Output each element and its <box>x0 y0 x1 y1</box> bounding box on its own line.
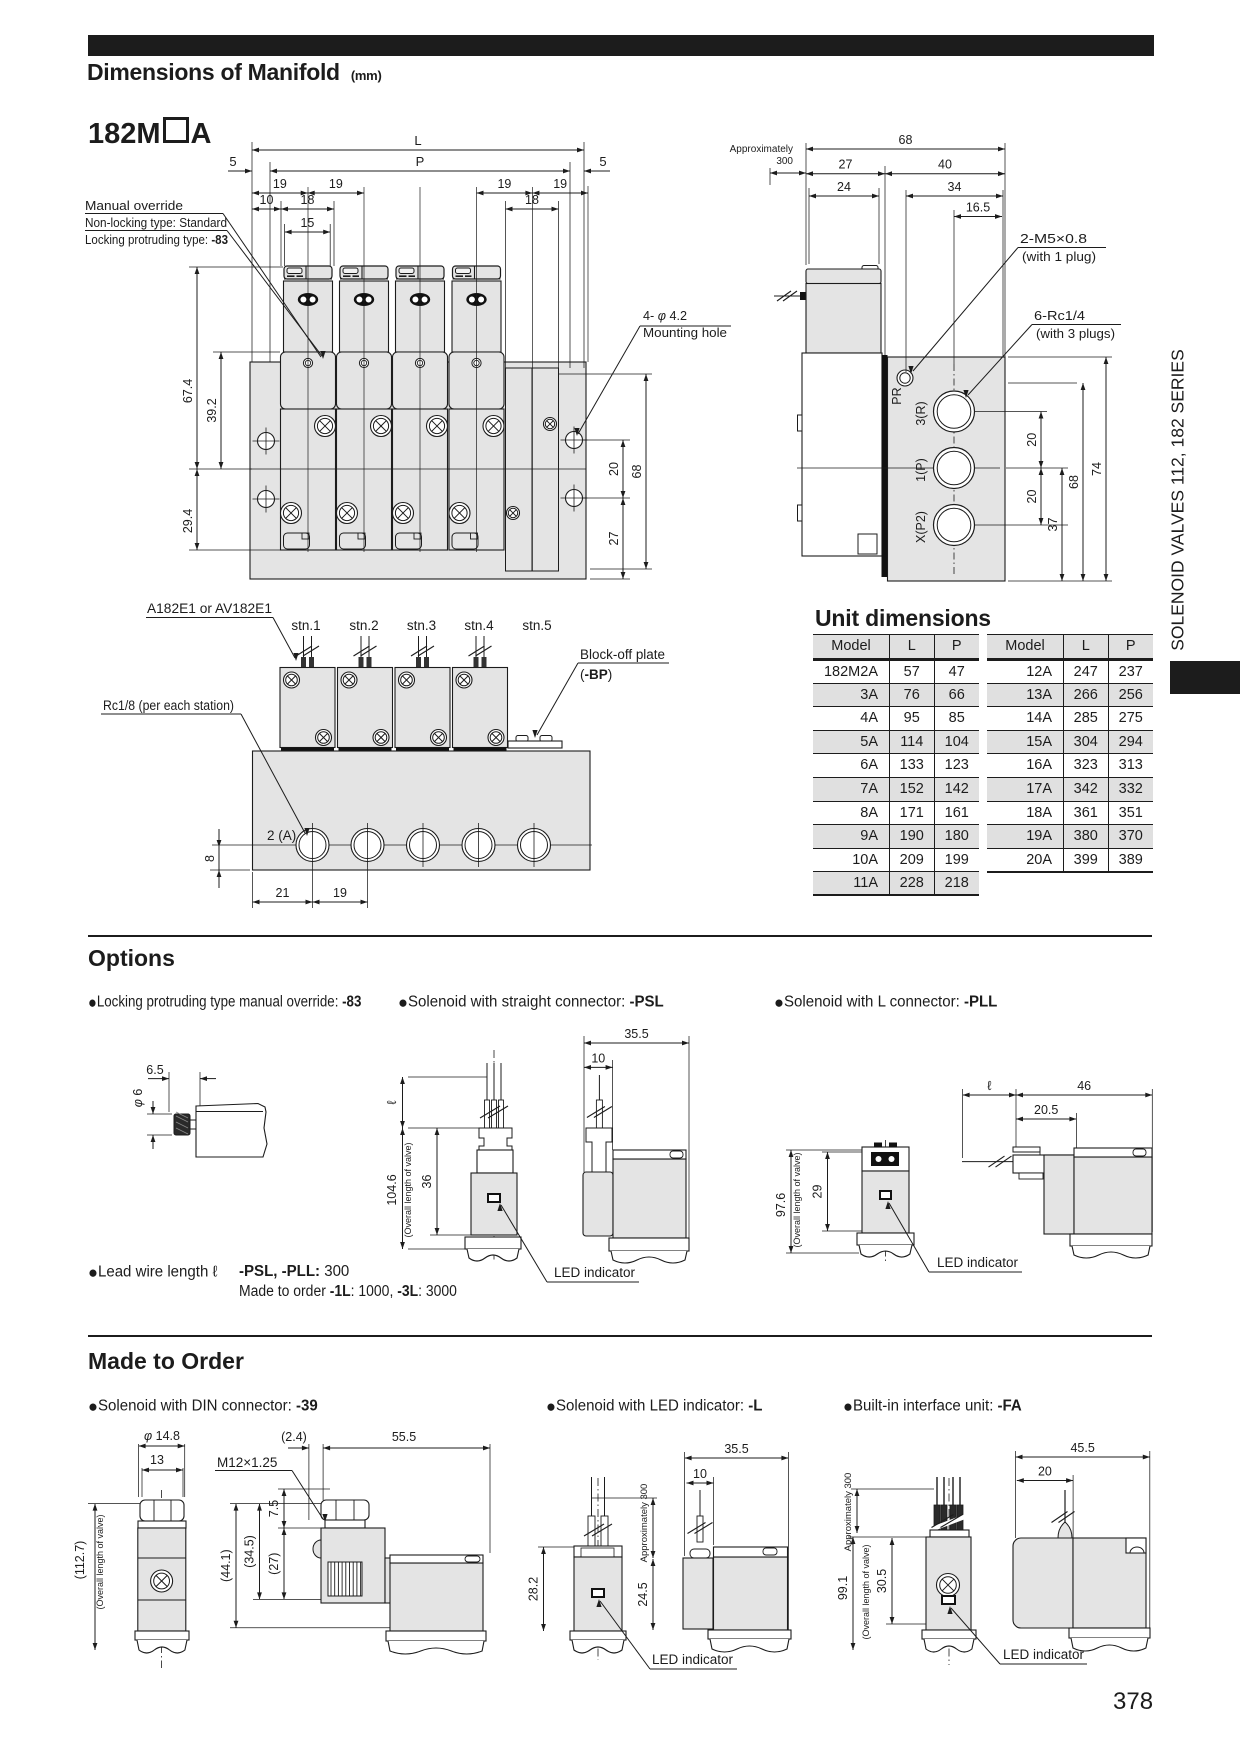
svg-text:LED indicator: LED indicator <box>937 1255 1019 1270</box>
svg-text:13: 13 <box>150 1453 164 1467</box>
svg-text:(Overall length of valve): (Overall length of valve) <box>861 1544 871 1639</box>
svg-text:20.5: 20.5 <box>1034 1103 1058 1117</box>
svg-text:99.1: 99.1 <box>836 1576 850 1600</box>
svg-text:LED indicator: LED indicator <box>652 1652 734 1667</box>
svg-text:36: 36 <box>420 1175 434 1189</box>
svg-text:35.5: 35.5 <box>724 1442 748 1456</box>
svg-text:Approximately 300: Approximately 300 <box>639 1484 650 1563</box>
svg-text:(Overall length of valve): (Overall length of valve) <box>95 1514 105 1609</box>
svg-text:10: 10 <box>591 1051 605 1065</box>
svg-text:(Overall length of valve): (Overall length of valve) <box>403 1142 413 1237</box>
svg-text:(2.4): (2.4) <box>281 1430 307 1444</box>
svg-text:28.2: 28.2 <box>527 1577 541 1601</box>
svg-text:104.6: 104.6 <box>385 1174 399 1205</box>
svg-text:45.5: 45.5 <box>1070 1441 1094 1455</box>
svg-text:20: 20 <box>1038 1465 1052 1479</box>
svg-text:(44.1): (44.1) <box>219 1549 233 1582</box>
svg-text:(112.7): (112.7) <box>73 1541 87 1580</box>
svg-text:46: 46 <box>1077 1079 1091 1093</box>
svg-text:97.6: 97.6 <box>774 1193 788 1217</box>
svg-text:(27): (27) <box>267 1553 281 1575</box>
svg-text:29: 29 <box>811 1185 825 1199</box>
svg-text:35.5: 35.5 <box>624 1027 648 1041</box>
svg-text:φ 6: φ 6 <box>131 1089 145 1108</box>
svg-text:(34.5): (34.5) <box>243 1535 257 1568</box>
svg-text:M12×1.25: M12×1.25 <box>217 1455 277 1470</box>
svg-text:30.5: 30.5 <box>875 1569 889 1593</box>
svg-text:φ 14.8: φ 14.8 <box>144 1429 180 1443</box>
svg-text:7.5: 7.5 <box>267 1500 281 1517</box>
svg-text:10: 10 <box>693 1467 707 1481</box>
svg-text:55.5: 55.5 <box>392 1430 416 1444</box>
svg-text:LED indicator: LED indicator <box>554 1265 636 1280</box>
svg-text:ℓ: ℓ <box>384 1100 399 1105</box>
svg-text:6.5: 6.5 <box>146 1063 163 1077</box>
svg-text:ℓ: ℓ <box>987 1078 992 1093</box>
svg-text:(Overall length of valve): (Overall length of valve) <box>792 1152 802 1247</box>
svg-text:LED indicator: LED indicator <box>1003 1647 1085 1662</box>
svg-text:24.5: 24.5 <box>636 1582 650 1606</box>
